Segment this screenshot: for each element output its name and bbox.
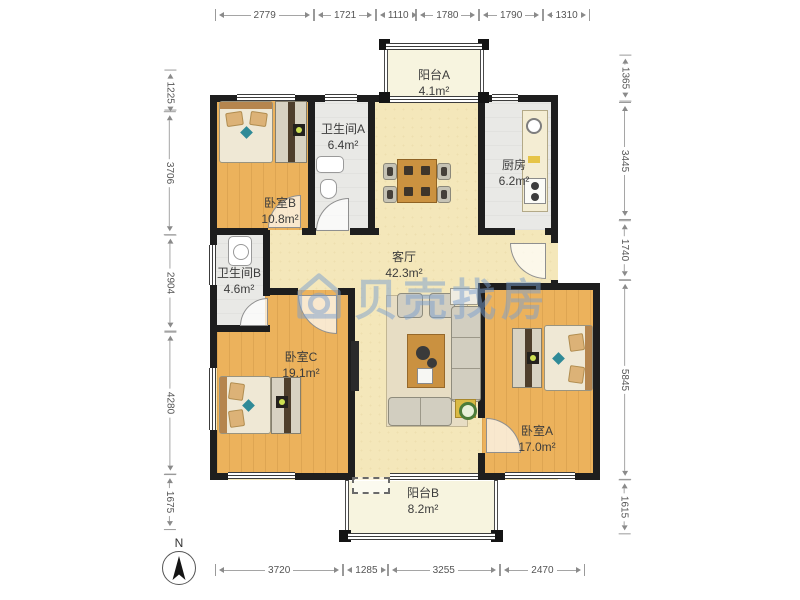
room-name: 阳台A [389,68,479,84]
bed [219,376,271,434]
wall-segment [350,228,379,235]
dimension-bottom: 3255 [388,564,500,576]
dimension-top: 1721 [314,9,376,21]
bed [544,325,593,391]
armchair [397,293,423,318]
dimension-left: 1225 [164,70,176,111]
room-label-living-room: 客厅 42.3m² [359,250,449,281]
room-name: 卧室B [235,196,325,212]
wall-segment [545,228,558,235]
dining-chair [383,163,397,180]
game-box [417,368,433,384]
bed-headboard [220,102,272,109]
plant-icon [459,402,477,420]
north-label: N [158,536,200,550]
dining-table [397,159,437,203]
room-name: 阳台B [378,486,468,502]
dimension-top: 2779 [215,9,314,21]
washer-door [233,244,249,260]
bed-accent [242,399,255,412]
room-name: 卫生间A [298,122,388,138]
wall-segment [478,283,551,290]
room-label-balcony-b: 阳台B 8.2m² [378,486,468,517]
placemat [404,187,413,196]
room-name: 卫生间B [194,266,284,282]
decor [427,358,437,368]
floor-plan-canvas: 阳台A 4.1m² 卫生间A 6.4m² 厨房 6.2m² 卧室B 10.8m²… [0,0,800,600]
room-name: 卧室A [492,424,582,440]
dimension-left: 1675 [164,474,176,530]
room-label-bathroom-b: 卫生间B 4.6m² [194,266,284,297]
wall-segment [593,283,600,480]
wall-segment [210,473,228,480]
dimension-top: 1790 [479,9,543,21]
wall-segment [478,453,485,480]
dimension-left: 4280 [164,331,176,474]
pillow [225,111,244,127]
dimension-bottom: 2470 [500,564,585,576]
room-label-bedroom-a: 卧室A 17.0m² [492,424,582,455]
room-area: 4.1m² [389,84,479,100]
bed-headboard [220,377,227,433]
window [390,473,478,480]
window [228,472,295,479]
window [348,533,495,540]
north-arrow-icon [164,553,194,583]
wall-segment [575,473,600,480]
dimension-top: 1110 [376,9,416,21]
window [325,94,357,101]
room-name: 厨房 [469,158,559,174]
window [237,94,295,101]
wall-post [478,92,489,103]
dining-chair [437,163,451,180]
bed-accent [552,352,565,365]
room-label-kitchen: 厨房 6.2m² [469,158,559,189]
room-label-bedroom-c: 卧室C 19.1m² [256,350,346,381]
dimension-bottom: 1285 [343,564,387,576]
sink [526,118,542,134]
plant-table [455,399,476,418]
wall-segment [210,325,270,332]
compass-circle [162,551,196,585]
dimension-right: 1740 [619,220,631,280]
bed [219,101,273,163]
wall-segment [302,228,316,235]
north-compass: N [158,536,200,585]
pillow [228,382,245,401]
wall-segment [210,228,268,235]
placemat [404,166,413,175]
wall-segment [210,95,217,245]
dimension-right: 1615 [619,480,631,535]
window [492,94,518,101]
placemat [421,166,430,175]
burner [531,193,539,201]
room-label-bathroom-a: 卫生间A 6.4m² [298,122,388,153]
room-name: 客厅 [359,250,449,266]
pillow [249,111,268,127]
dining-chair [437,186,451,203]
dimension-left: 2904 [164,234,176,331]
window [505,472,575,479]
dimension-right: 3445 [619,102,631,220]
room-area: 10.8m² [235,212,325,228]
window [386,43,482,50]
bed-accent [240,126,253,139]
coffee-table [407,334,445,388]
room-area: 6.4m² [298,138,388,154]
pillow [228,409,245,428]
room-label-bedroom-b: 卧室B 10.8m² [235,196,325,227]
placemat [421,187,430,196]
washbasin [316,156,344,173]
room-area: 19.1m² [256,366,346,382]
room-label-balcony-a: 阳台A 4.1m² [389,68,479,99]
sofa-long [451,306,481,402]
room-area: 8.2m² [378,502,468,518]
room-area: 17.0m² [492,440,582,456]
sofa-side-table [450,288,478,305]
balcony-wall [494,480,498,536]
dimension-top: 1310 [543,9,590,21]
pillow [568,333,585,352]
balcony-wall [345,480,349,536]
room-area: 6.2m² [469,174,559,190]
dimension-right: 1365 [619,55,631,102]
bed-headboard [585,326,592,390]
room-name: 卧室C [256,350,346,366]
dimension-left: 3706 [164,111,176,235]
dimension-bottom: 3720 [215,564,343,576]
sofa-loveseat [388,397,452,426]
nightstand-lamp [527,352,539,364]
dimension-top: 1780 [416,9,480,21]
tv [351,341,359,391]
washing-machine [228,236,252,266]
nightstand-lamp [276,396,288,408]
pillow [568,365,585,384]
dining-chair [383,186,397,203]
wall-segment [368,95,375,235]
dimension-right: 5845 [619,279,631,479]
window [209,368,216,430]
decor [416,346,430,360]
room-area: 42.3m² [359,266,449,282]
room-area: 4.6m² [194,282,284,298]
wall-segment [478,228,515,235]
